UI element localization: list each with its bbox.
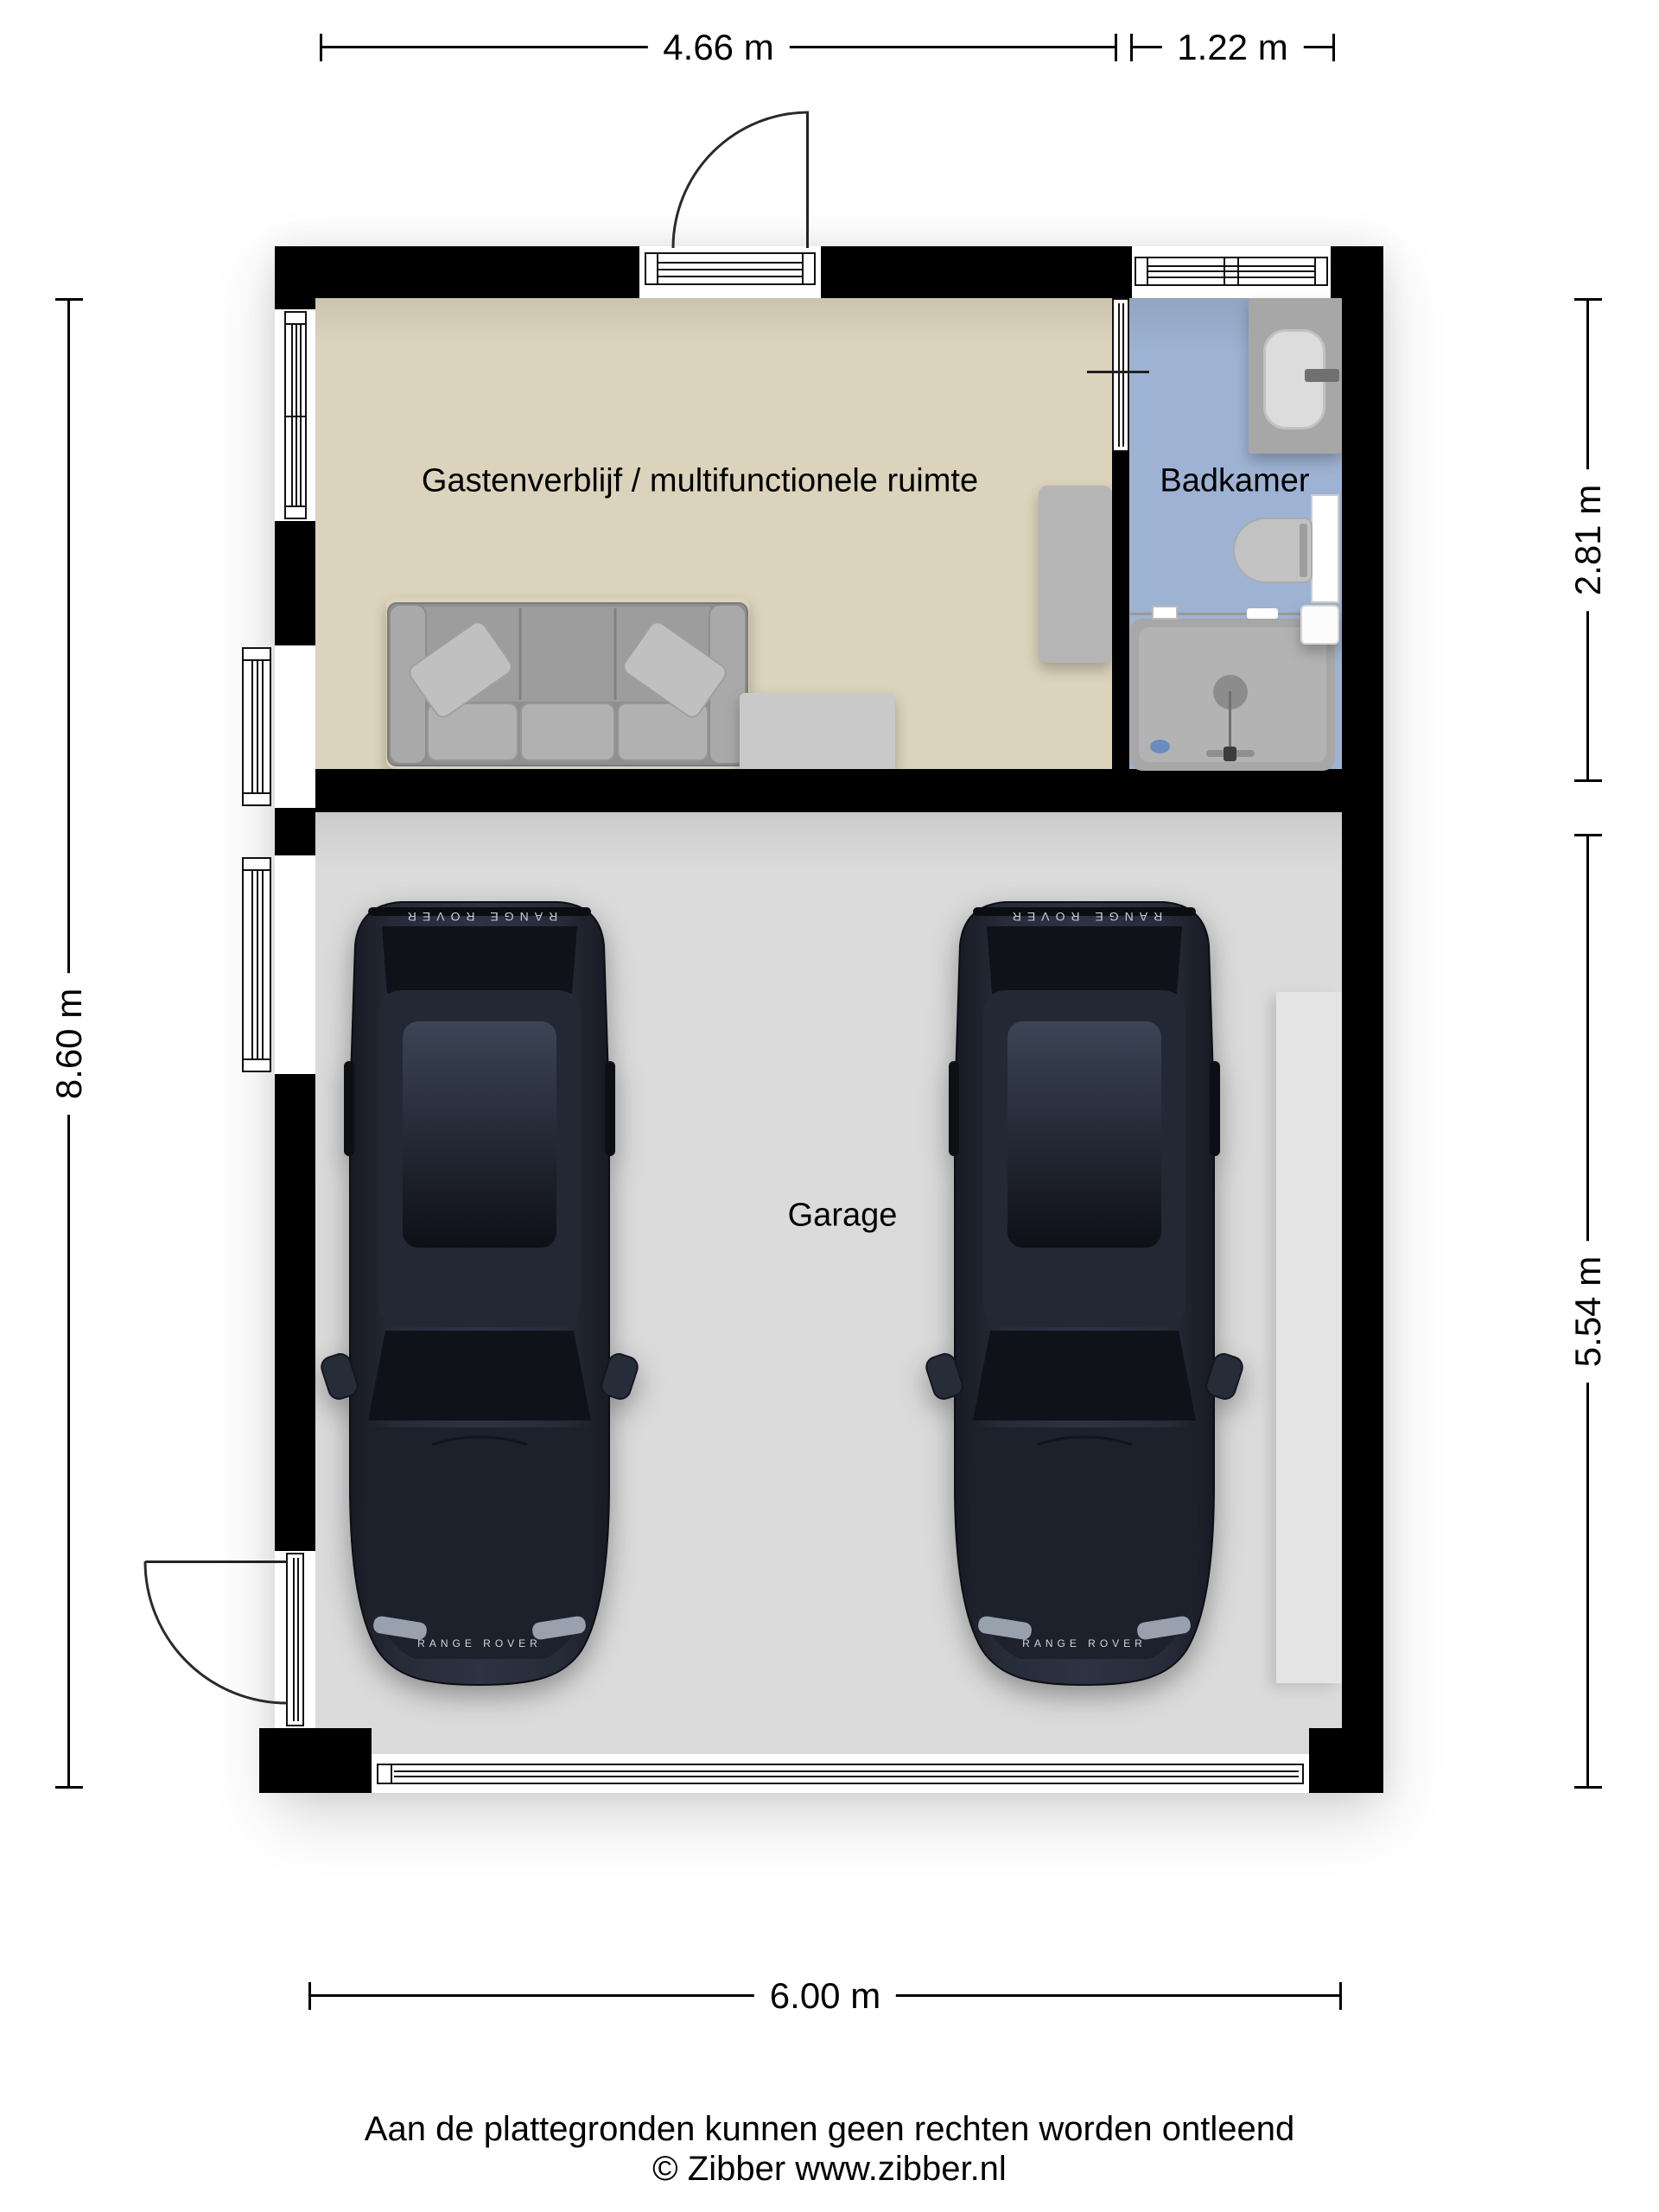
shower-glass-seal bbox=[1247, 608, 1278, 619]
toilet-seat-hinge bbox=[1300, 524, 1307, 577]
car-left: RANGE ROVER RANGE ROVER bbox=[320, 888, 639, 1692]
entry-door-swing-arc bbox=[665, 105, 817, 257]
garage-window bbox=[242, 857, 271, 1072]
dimension-top-guest: 4.66 m bbox=[320, 34, 1117, 61]
car-front-badge: RANGE ROVER bbox=[417, 1637, 542, 1649]
bathroom-window bbox=[1135, 257, 1328, 286]
shower-glass-handle bbox=[1152, 606, 1178, 620]
faucet-icon bbox=[1305, 369, 1339, 382]
bathroom-label: Badkamer bbox=[1160, 463, 1309, 500]
guest-window2-opening bbox=[275, 645, 315, 808]
interior-door-tick bbox=[1087, 371, 1149, 373]
dimension-bottom-garage: 6.00 m bbox=[308, 1982, 1342, 2010]
wall-left-c bbox=[275, 808, 315, 855]
dimension-label-right-garage: 5.54 m bbox=[1567, 1240, 1609, 1382]
wall-left-a bbox=[275, 246, 315, 309]
guest-room-label: Gastenverblijf / multifunctionele ruimte bbox=[422, 463, 978, 500]
car-right: RANGE ROVER RANGE ROVER bbox=[925, 888, 1244, 1692]
dimension-top-bathroom: 1.22 m bbox=[1130, 34, 1335, 61]
dimension-right-bathroom: 2.81 m bbox=[1574, 298, 1602, 782]
car-front-badge: RANGE ROVER bbox=[1022, 1637, 1147, 1649]
wall-interior-bathroom bbox=[1112, 452, 1129, 769]
entry-door-threshold bbox=[645, 252, 816, 285]
guest-window bbox=[284, 311, 307, 519]
wall-left-d bbox=[275, 1074, 315, 1551]
wall-right bbox=[1342, 246, 1383, 1793]
interior-door bbox=[1112, 298, 1129, 452]
dimension-label-top-bathroom: 1.22 m bbox=[1161, 27, 1303, 68]
corner-block-bottom-right bbox=[1309, 1728, 1383, 1793]
wall-top-middle bbox=[821, 246, 1132, 298]
sofa bbox=[386, 598, 749, 769]
dimension-label-right-bathroom: 2.81 m bbox=[1567, 469, 1609, 611]
car-rear-badge: RANGE ROVER bbox=[1007, 910, 1162, 924]
corner-block-bottom-left bbox=[259, 1728, 372, 1793]
toilet-cistern bbox=[1311, 494, 1339, 603]
dimension-left-total: 8.60 m bbox=[55, 298, 83, 1789]
dimension-label-bottom-garage: 6.00 m bbox=[754, 1975, 896, 2017]
footer-copyright: © Zibber www.zibber.nl bbox=[652, 2150, 1007, 2189]
guest-window2 bbox=[242, 647, 271, 806]
footer-disclaimer: Aan de plattegronden kunnen geen rechten… bbox=[365, 2110, 1294, 2149]
car-rear-badge: RANGE ROVER bbox=[402, 910, 557, 924]
side-door-swing-arc bbox=[138, 1555, 294, 1711]
shower-soap-dot bbox=[1150, 740, 1170, 753]
guest-side-table bbox=[740, 693, 895, 769]
shower-valve-icon bbox=[1224, 747, 1236, 761]
wall-top-left bbox=[275, 246, 639, 298]
floorplan-canvas: RANGE ROVER RANGE ROVER RANGE ROVER RANG… bbox=[0, 0, 1659, 2212]
guest-cabinet bbox=[1039, 486, 1112, 663]
wall-left-b bbox=[275, 521, 315, 645]
garage-door bbox=[377, 1764, 1304, 1784]
bathroom-column bbox=[1300, 605, 1339, 645]
garage-label: Garage bbox=[788, 1198, 898, 1235]
dimension-label-left-total: 8.60 m bbox=[48, 972, 90, 1114]
garage-window-opening bbox=[275, 855, 315, 1074]
garage-storage-cabinet bbox=[1276, 992, 1342, 1683]
dimension-label-top-guest: 4.66 m bbox=[647, 27, 789, 68]
wall-divider-horizontal bbox=[315, 769, 1342, 812]
dimension-right-garage: 5.54 m bbox=[1574, 834, 1602, 1789]
